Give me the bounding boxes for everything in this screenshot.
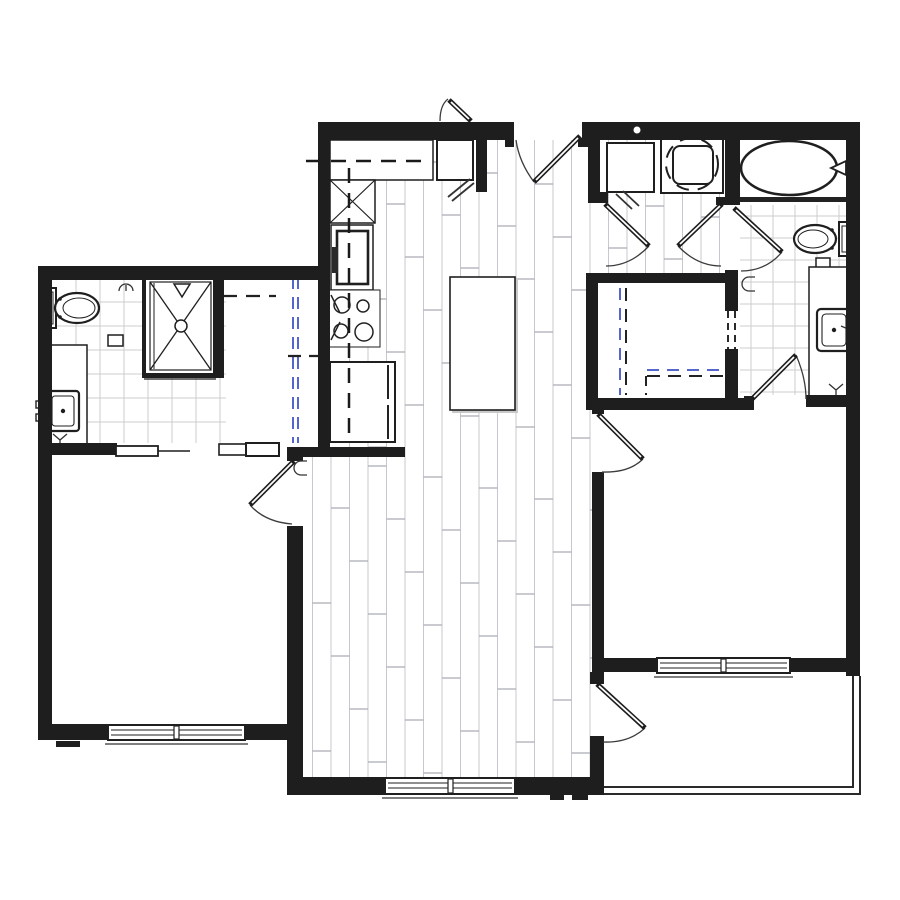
bed2-door-jamb-top [592,398,604,414]
wall-tick [550,794,564,800]
living-room-window [382,778,518,798]
entry-jamb-left [505,138,514,147]
laundry-closet [607,137,723,209]
bed2-bottom-wall-b [790,658,848,672]
refrigerator [330,362,395,442]
balcony-door [597,684,645,742]
entry-door [516,136,580,182]
entry-stub-wall [476,140,487,192]
closet-dashed-opening [728,311,735,349]
toilet [794,222,855,256]
kitchen-island [450,277,518,413]
bedroom-1-door [250,461,294,524]
kitchen [306,140,518,442]
closet-left-rod [223,277,318,443]
kitchen-left-wall [318,140,330,448]
walls [38,122,860,800]
tub-left-wall [725,135,740,205]
bed1-bottom-wall-a [38,724,108,740]
closet-bottom-wall [586,398,746,410]
balcony-left-wall [590,736,604,795]
tub-apron [733,197,846,202]
wall-tick [56,741,80,747]
pocket-door-panel [116,446,158,456]
bathroom-left [36,276,318,447]
door-hook-mark [294,461,307,475]
closet-left-wall [586,273,598,400]
floor-plan-page [0,0,900,900]
bedroom-2-window [654,658,793,677]
bath-left-bottom-wall [38,443,117,455]
living-bottom-wall-a [287,777,385,795]
windows [105,658,793,798]
wall-tick [572,794,588,800]
door-hook-mark [742,277,755,291]
paper-holder [108,335,123,346]
bedroom-2-door [598,414,643,472]
opening-header [219,444,247,455]
shower-side-wall [213,272,224,378]
balcony-railing [604,676,860,794]
bed2-bottom-wall-a [592,658,657,672]
kitchen-bottom-stub-wall [303,447,405,457]
robe-hook [119,284,133,291]
closet-right-wall-lower [725,349,738,400]
walk-in-closet-rods [620,288,729,395]
bed2-left-wall [592,472,604,672]
drain-circle [175,320,187,332]
opening-header [246,443,279,456]
bed1-door-jamb-top [287,447,303,461]
bath2-bottom-wall [806,395,848,407]
shower [144,276,216,379]
dryer [661,137,723,193]
entry-cabinet [437,140,473,180]
top-wall-right [582,122,860,140]
living-bottom-wall-b [515,777,603,795]
top-wall-left [318,122,514,140]
corner-cabinet-x [330,180,375,223]
closet-top-wall [586,273,733,283]
balcony-door-jamb-top [590,672,604,684]
right-wall [846,122,860,676]
cooktop-4-burner [328,290,380,347]
closet-right-wall-upper [725,270,738,311]
floor-plan-drawing [0,0,900,900]
bed1-bottom-wall-b [245,724,291,740]
exterior-outswing-door [440,99,471,121]
bathtub [733,141,846,202]
bath-right-hall-door [734,208,782,271]
bed1-right-wall [287,526,303,740]
bedroom-1-window [105,725,248,744]
washer [607,143,654,192]
bath-left-top-wall [38,266,330,280]
left-wall [38,266,52,740]
laundry-left-jamb [588,192,608,203]
wall-oven [331,225,373,290]
peephole-circle [633,126,642,135]
